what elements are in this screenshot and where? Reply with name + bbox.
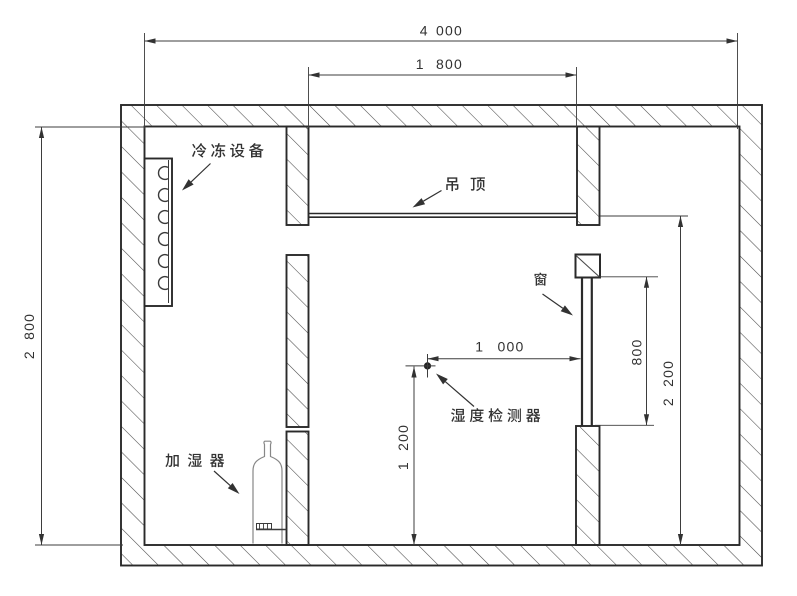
svg-text:1: 1 [475, 339, 483, 355]
svg-text:1: 1 [416, 56, 424, 72]
svg-text:1 200: 1 200 [395, 424, 411, 470]
svg-text:800: 800 [629, 339, 645, 366]
svg-text:000: 000 [436, 23, 463, 39]
svg-text:800: 800 [436, 56, 463, 72]
svg-text:000: 000 [498, 339, 525, 355]
svg-text:4: 4 [420, 23, 428, 39]
svg-text:2 800: 2 800 [21, 313, 37, 359]
svg-text:2 200: 2 200 [660, 360, 676, 406]
